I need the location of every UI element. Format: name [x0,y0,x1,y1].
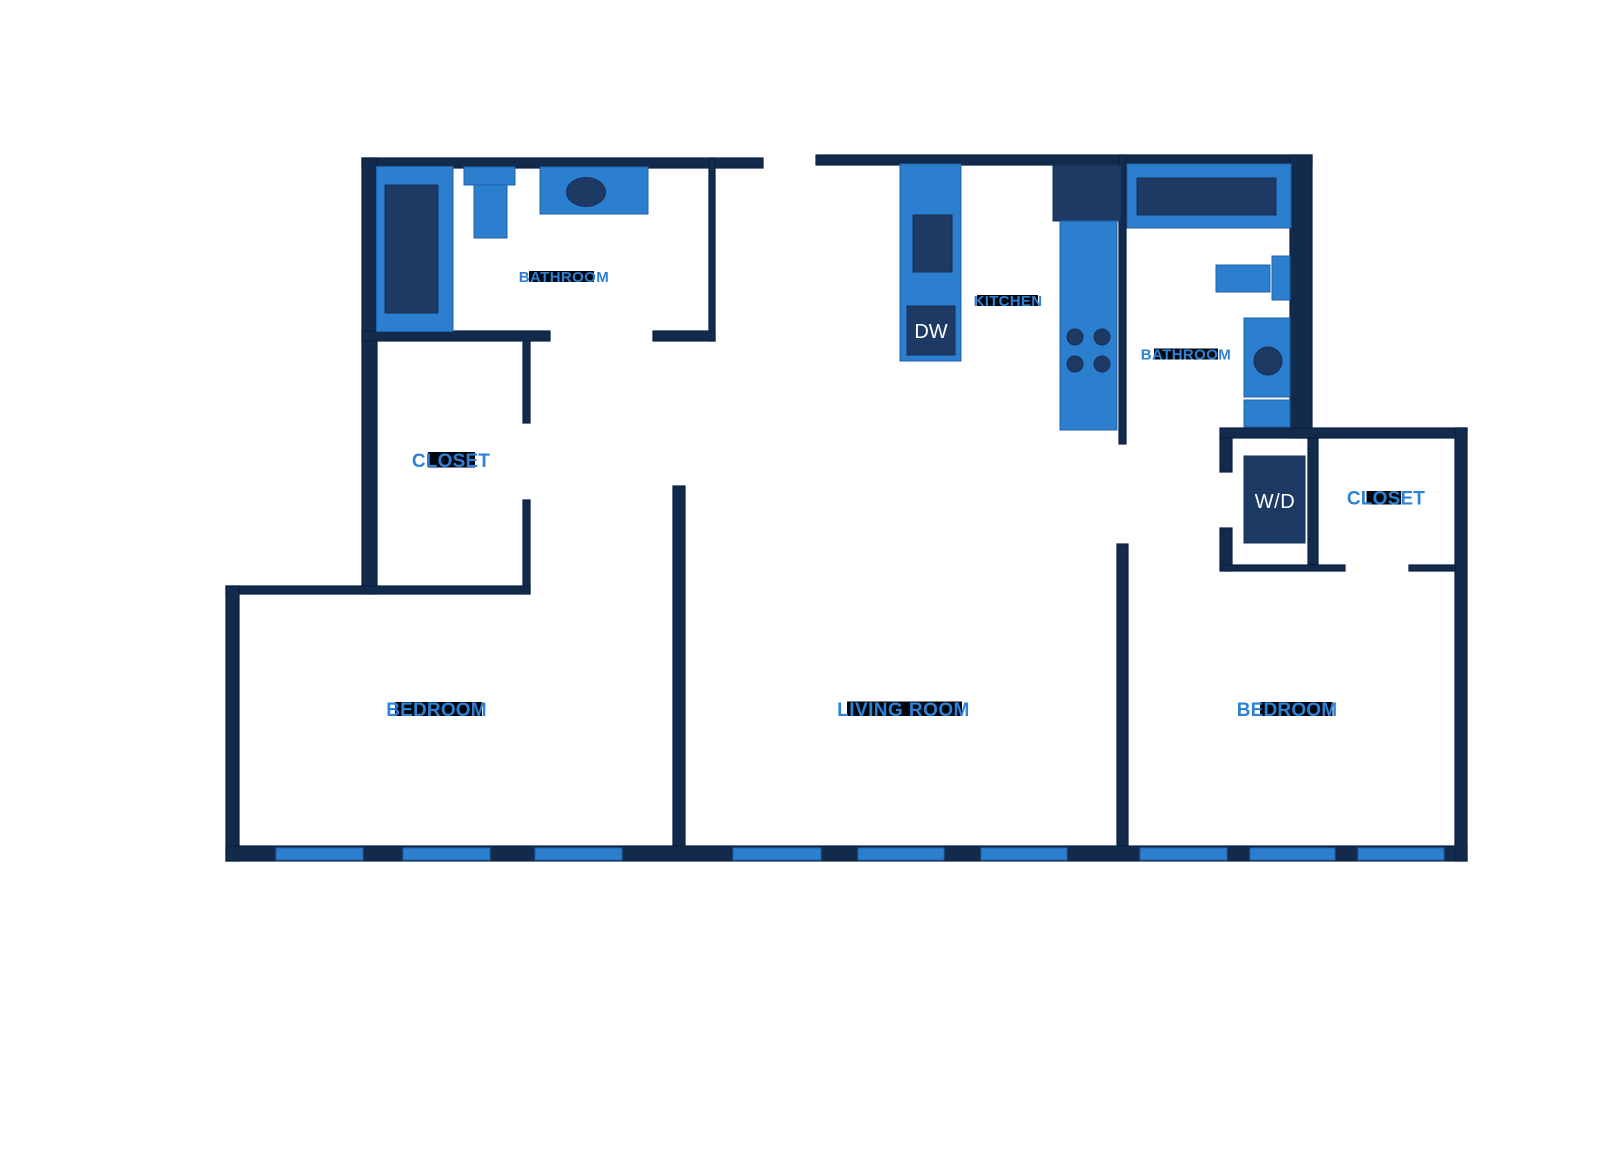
svg-text:CLOSET: CLOSET [412,451,490,472]
svg-text:BEDROOM: BEDROOM [1237,700,1338,721]
svg-text:BEDROOM: BEDROOM [386,700,487,721]
svg-text:BATHROOM: BATHROOM [1141,347,1231,364]
svg-text:BATHROOM: BATHROOM [519,269,609,286]
svg-text:KITCHEN: KITCHEN [974,293,1043,310]
svg-text:CLOSET: CLOSET [1347,489,1425,510]
svg-text:W/D: W/D [1255,491,1295,513]
svg-text:LIVING ROOM: LIVING ROOM [837,700,970,721]
svg-text:DW: DW [914,321,947,343]
